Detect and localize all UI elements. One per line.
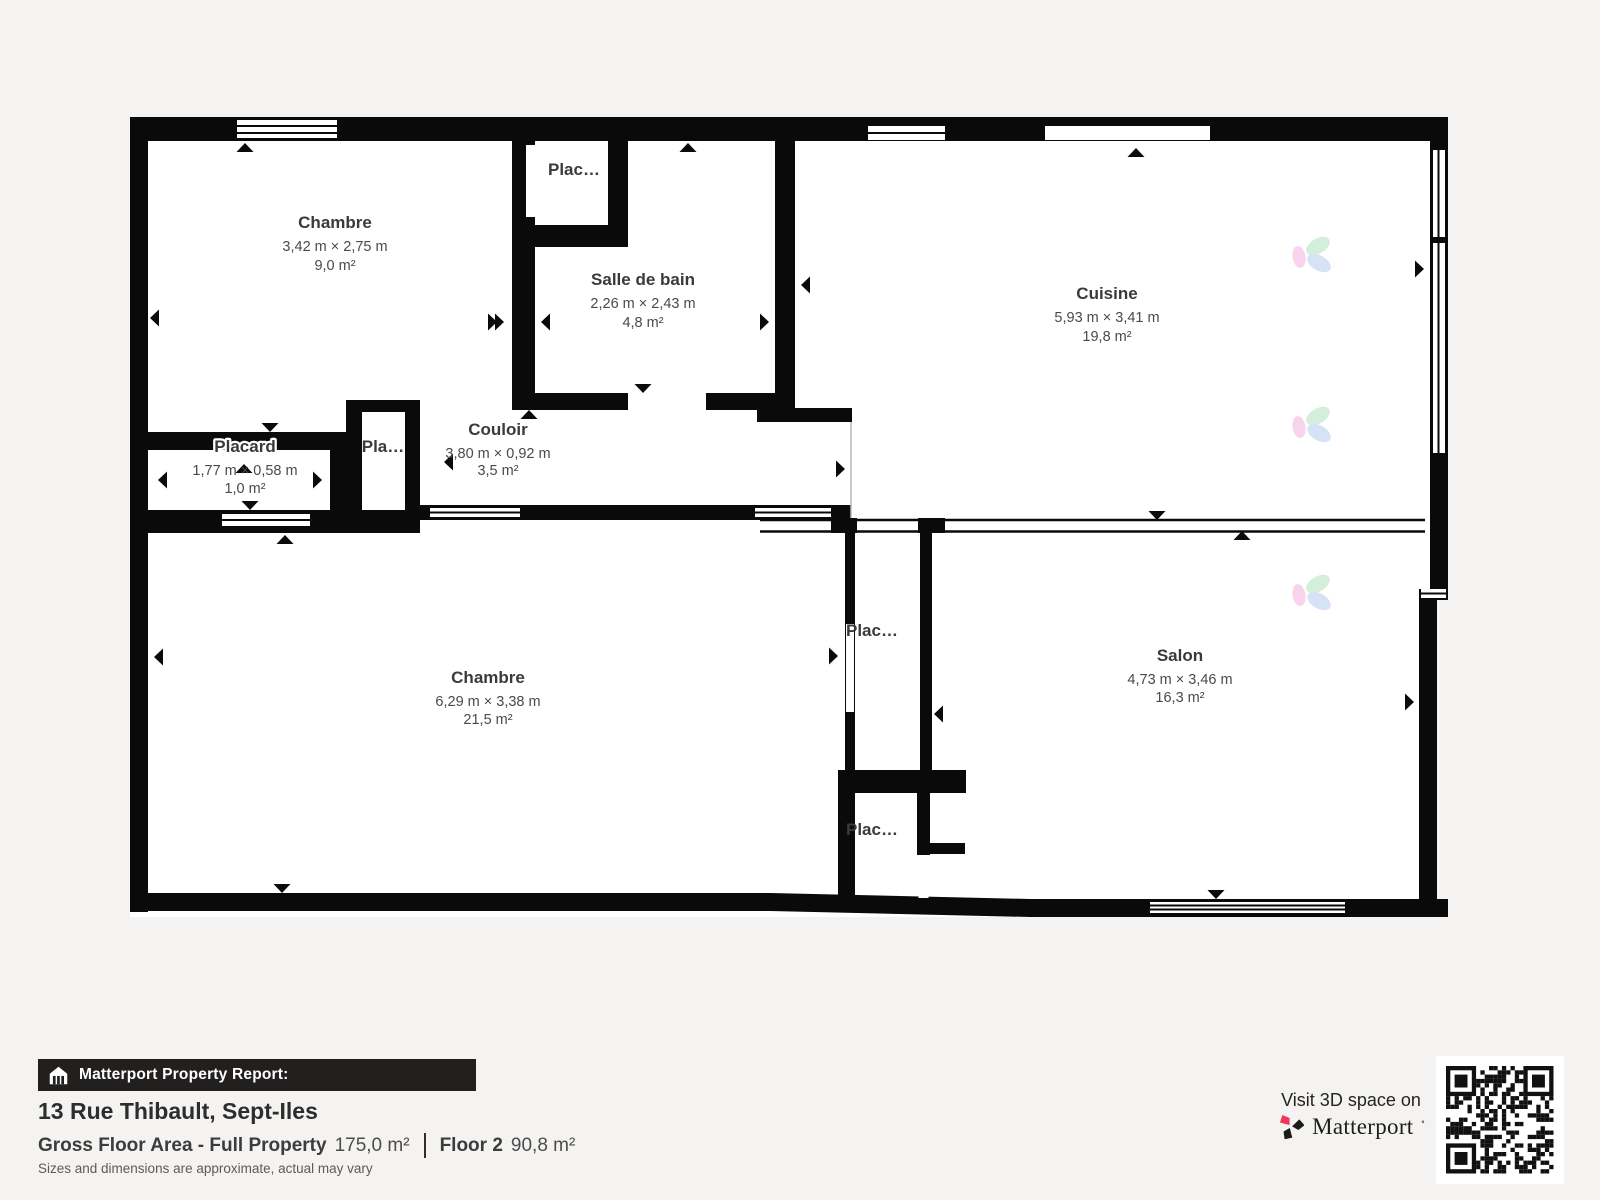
room-dims: 5,93 m × 3,41 m: [1054, 310, 1159, 326]
room-name: Chambre: [451, 668, 525, 687]
room-name: Pla…: [362, 437, 405, 456]
divider: [424, 1133, 426, 1158]
visit-3d-text: Visit 3D space on: [1240, 1090, 1462, 1111]
floorplan-report-page: { "plan": { "rooms": [ {"name": "Chambre…: [0, 0, 1600, 1200]
room-dims: 6,29 m × 3,38 m: [435, 694, 540, 710]
room-name: Plac…: [846, 621, 898, 640]
matterport-wordmark: Matterport: [1312, 1114, 1413, 1140]
qr-code: [1436, 1056, 1564, 1184]
room-area: 3,5 m²: [477, 463, 518, 479]
room-dims: 2,26 m × 2,43 m: [590, 296, 695, 312]
report-title: Matterport Property Report:: [79, 1066, 289, 1084]
room-area: 1,0 m²: [224, 481, 265, 497]
report-title-bar: Matterport Property Report:: [38, 1059, 476, 1091]
room-dims: 3,42 m × 2,75 m: [282, 239, 387, 255]
room-area: 9,0 m²: [314, 258, 355, 274]
home-icon: [48, 1065, 69, 1086]
floor-area-summary: Gross Floor Area - Full Property 175,0 m…: [38, 1133, 575, 1158]
disclaimer-text: Sizes and dimensions are approximate, ac…: [38, 1161, 373, 1176]
room-area: 4,8 m²: [622, 315, 663, 331]
room-name: Salon: [1157, 646, 1203, 665]
closet-door-leaf: [526, 145, 535, 217]
matterport-logo: Matterport ˚: [1240, 1113, 1462, 1140]
room-name: Plac…: [846, 820, 898, 839]
room-dims: 4,73 m × 3,46 m: [1127, 672, 1232, 688]
room-name: Salle de bain: [591, 270, 695, 289]
room-name: Placard: [214, 437, 275, 456]
room-area: 16,3 m²: [1155, 690, 1204, 706]
floor-label: Floor 2: [440, 1135, 503, 1157]
room-area: 19,8 m²: [1082, 329, 1131, 345]
property-address: 13 Rue Thibault, Sept-Iles: [38, 1098, 318, 1125]
gfa-value: 175,0 m²: [335, 1135, 410, 1157]
trademark-mark: ˚: [1422, 1121, 1425, 1132]
gfa-label: Gross Floor Area - Full Property: [38, 1135, 327, 1157]
room-name: Chambre: [298, 213, 372, 232]
matterport-pinwheel-icon: [1277, 1113, 1304, 1140]
room-dims: 3,80 m × 0,92 m: [445, 446, 550, 462]
closet-door-leaf: [919, 855, 929, 898]
room-area: 21,5 m²: [463, 712, 512, 728]
room-dims: 1,77 m × 0,58 m: [192, 463, 297, 479]
floor-plan: Chambre 3,42 m × 2,75 m 9,0 m² Plac… Sal…: [0, 0, 1600, 1010]
floor-value: 90,8 m²: [511, 1135, 575, 1157]
room-name: Plac…: [548, 160, 600, 179]
room-name: Cuisine: [1076, 284, 1137, 303]
room-name: Couloir: [468, 420, 528, 439]
